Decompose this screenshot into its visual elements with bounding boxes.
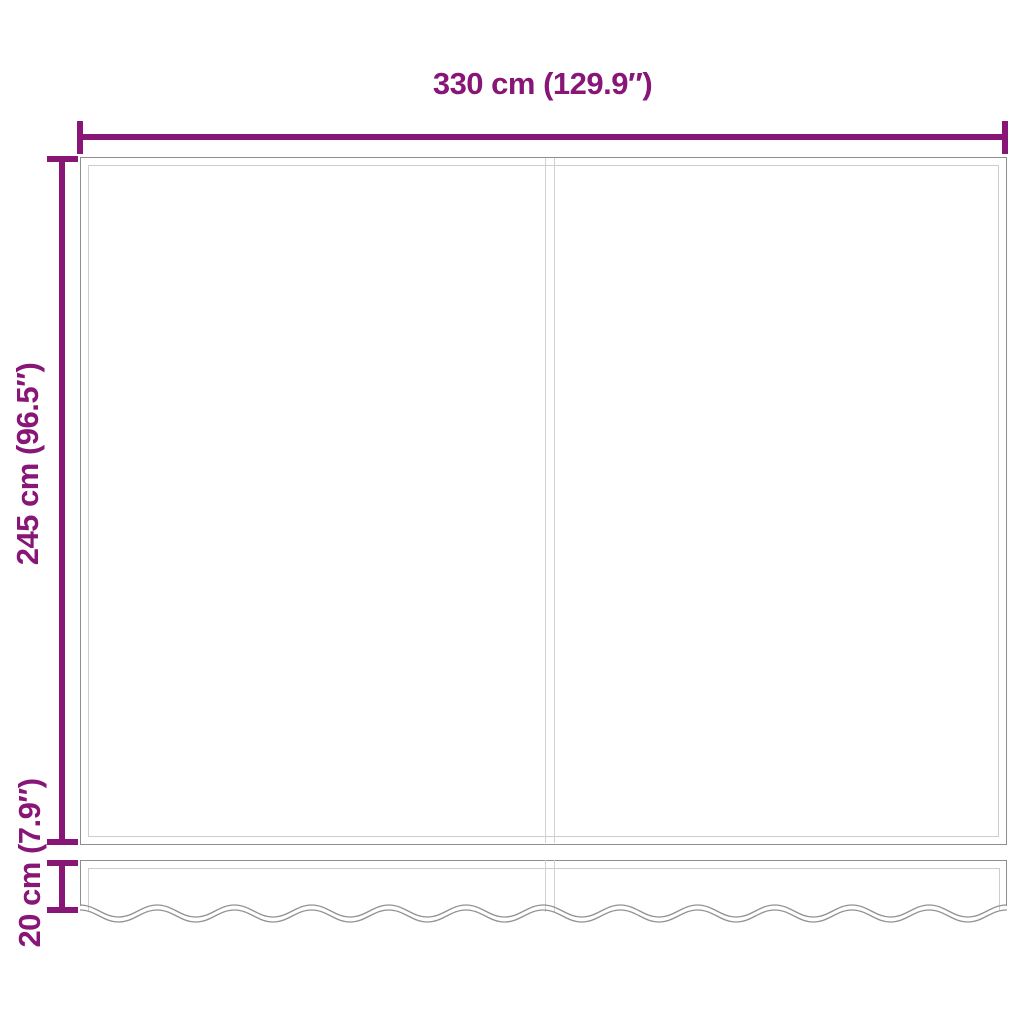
width-dimension-line	[77, 134, 1008, 140]
width-dimension-label: 330 cm (129.9″)	[77, 66, 1008, 102]
valance-scalloped-edge-outer-line	[80, 905, 1006, 917]
fabric-panel-inner-outline	[88, 165, 999, 837]
height-dimension-cap-top	[47, 156, 78, 162]
valance-scalloped-edge-inner-line	[80, 910, 1006, 922]
valance-top-inner-edge	[88, 868, 999, 869]
height-dimension-cap-bottom	[47, 839, 78, 845]
valance-dimension-label: 20 cm (7.9″)	[12, 778, 48, 947]
fabric-center-seam	[545, 158, 555, 843]
height-dimension-line	[59, 158, 65, 843]
width-dimension-cap-left	[77, 121, 83, 154]
valance-scalloped-edge	[80, 900, 1007, 940]
valance-dimension-line	[59, 861, 65, 913]
valance-dimension-cap-top	[47, 860, 78, 866]
valance-dimension-cap-bottom	[47, 907, 78, 913]
width-dimension-cap-right	[1002, 121, 1008, 154]
product-dimension-diagram: 330 cm (129.9″) 245 cm (96.5″) 20 cm (7.…	[0, 0, 1024, 1024]
height-dimension-label: 245 cm (96.5″)	[10, 363, 46, 566]
valance-top-edge	[80, 860, 1007, 861]
